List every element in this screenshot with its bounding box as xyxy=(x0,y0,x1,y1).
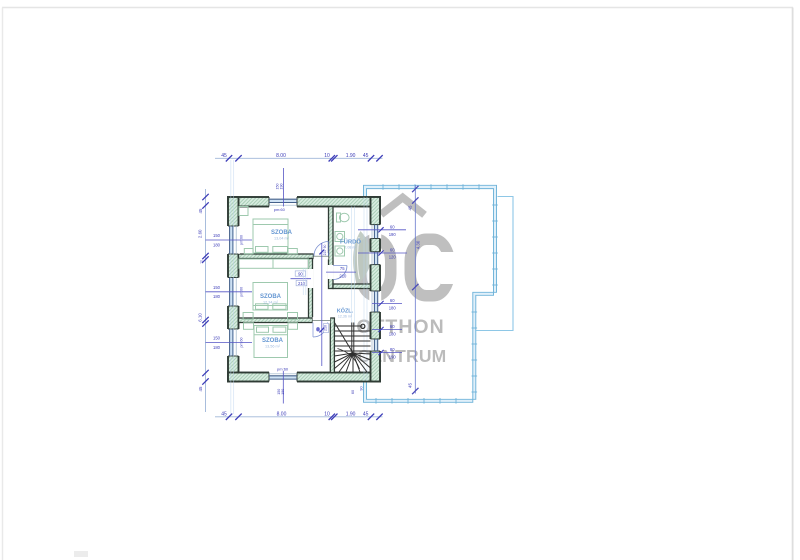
svg-text:8.00: 8.00 xyxy=(277,411,287,417)
svg-text:10: 10 xyxy=(324,411,330,417)
svg-text:pm:60: pm:60 xyxy=(240,235,244,245)
svg-text:FÜRDŐ: FÜRDŐ xyxy=(340,238,361,245)
svg-text:2.60: 2.60 xyxy=(198,229,203,238)
svg-text:60: 60 xyxy=(351,390,355,394)
svg-text:150: 150 xyxy=(213,336,221,341)
svg-text:80: 80 xyxy=(390,347,395,352)
svg-text:60: 60 xyxy=(390,324,395,329)
svg-text:pm:60: pm:60 xyxy=(240,287,244,297)
svg-text:60: 60 xyxy=(390,298,395,303)
svg-text:8.00: 8.00 xyxy=(276,153,286,159)
svg-text:7,08 m²: 7,08 m² xyxy=(344,246,357,250)
svg-text:6.10: 6.10 xyxy=(198,313,203,322)
svg-text:pm:60: pm:60 xyxy=(277,367,289,372)
svg-text:180: 180 xyxy=(213,242,221,247)
svg-text:60: 60 xyxy=(390,248,395,253)
svg-text:60: 60 xyxy=(390,224,395,229)
svg-text:13,04 m²: 13,04 m² xyxy=(274,237,290,241)
svg-text:190: 190 xyxy=(280,184,284,190)
svg-text:10: 10 xyxy=(324,153,330,159)
svg-text:1.90: 1.90 xyxy=(346,411,356,417)
svg-text:SZOBA: SZOBA xyxy=(260,294,282,300)
svg-text:4.30: 4.30 xyxy=(416,240,421,249)
svg-text:12,36 m²: 12,36 m² xyxy=(338,315,353,319)
svg-text:180: 180 xyxy=(389,305,397,310)
svg-text:45: 45 xyxy=(198,208,203,213)
svg-text:SZOBA: SZOBA xyxy=(271,230,293,236)
svg-text:45: 45 xyxy=(198,386,203,391)
svg-text:90: 90 xyxy=(360,386,364,390)
svg-text:150: 150 xyxy=(213,233,221,238)
svg-text:180: 180 xyxy=(389,331,397,336)
svg-text:KÖZL.: KÖZL. xyxy=(337,307,354,314)
svg-text:210: 210 xyxy=(298,281,306,286)
svg-text:90: 90 xyxy=(323,245,327,249)
svg-text:45: 45 xyxy=(221,411,227,417)
svg-text:12,34 m²: 12,34 m² xyxy=(263,301,279,305)
svg-text:190: 190 xyxy=(389,354,397,359)
svg-text:180: 180 xyxy=(213,345,221,350)
svg-text:45: 45 xyxy=(408,383,413,388)
svg-text:180: 180 xyxy=(213,294,221,299)
svg-text:13,56 m²: 13,56 m² xyxy=(265,345,281,349)
svg-text:SZOBA: SZOBA xyxy=(262,338,284,344)
svg-text:10: 10 xyxy=(199,260,203,264)
svg-text:150: 150 xyxy=(213,285,221,290)
svg-text:75: 75 xyxy=(340,266,345,271)
svg-text:90: 90 xyxy=(298,271,303,276)
svg-text:45: 45 xyxy=(363,153,369,159)
svg-text:1.90: 1.90 xyxy=(346,153,356,159)
svg-text:pm:60: pm:60 xyxy=(274,207,286,212)
svg-text:190: 190 xyxy=(281,389,285,395)
svg-text:45: 45 xyxy=(363,411,369,417)
svg-text:45: 45 xyxy=(408,205,413,210)
svg-text:190: 190 xyxy=(389,232,397,237)
svg-text:120: 120 xyxy=(389,255,397,260)
svg-text:45: 45 xyxy=(221,153,227,159)
svg-text:210: 210 xyxy=(339,274,347,279)
svg-text:pm:60: pm:60 xyxy=(240,338,244,348)
